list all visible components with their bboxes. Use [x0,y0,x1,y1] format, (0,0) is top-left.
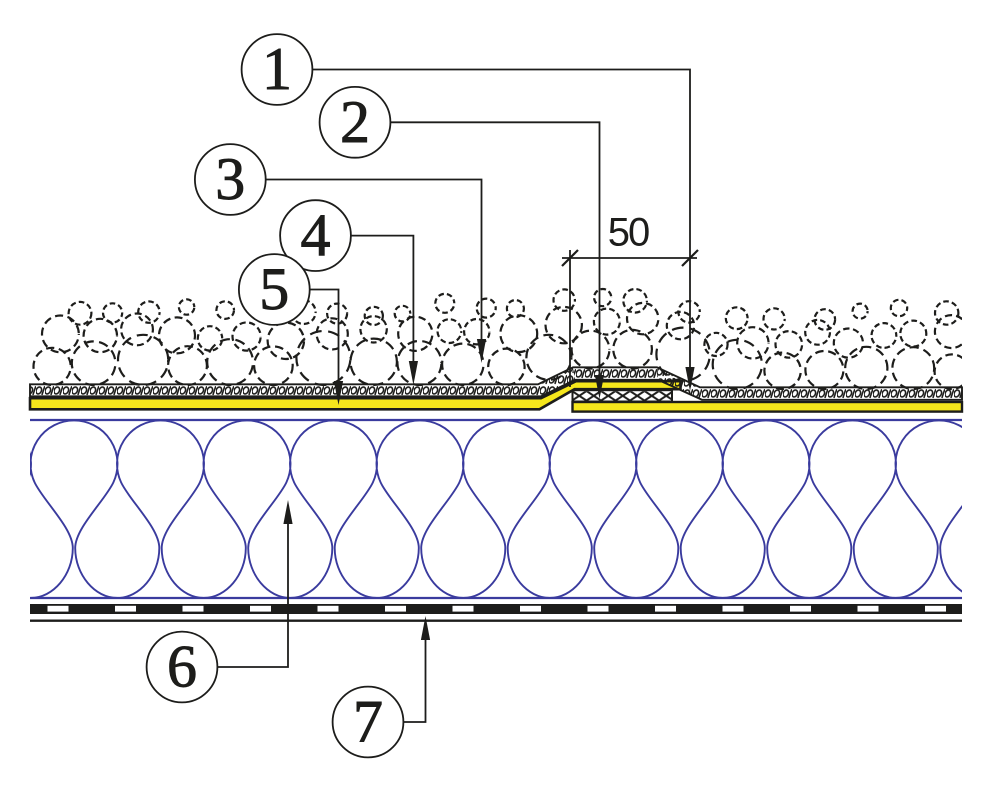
svg-text:1: 1 [262,36,292,102]
svg-text:2: 2 [340,89,370,155]
svg-text:3: 3 [215,146,245,212]
svg-text:7: 7 [353,689,383,755]
svg-text:4: 4 [301,202,331,268]
svg-text:5: 5 [259,256,289,322]
svg-text:50: 50 [608,211,649,255]
svg-text:6: 6 [167,634,197,700]
